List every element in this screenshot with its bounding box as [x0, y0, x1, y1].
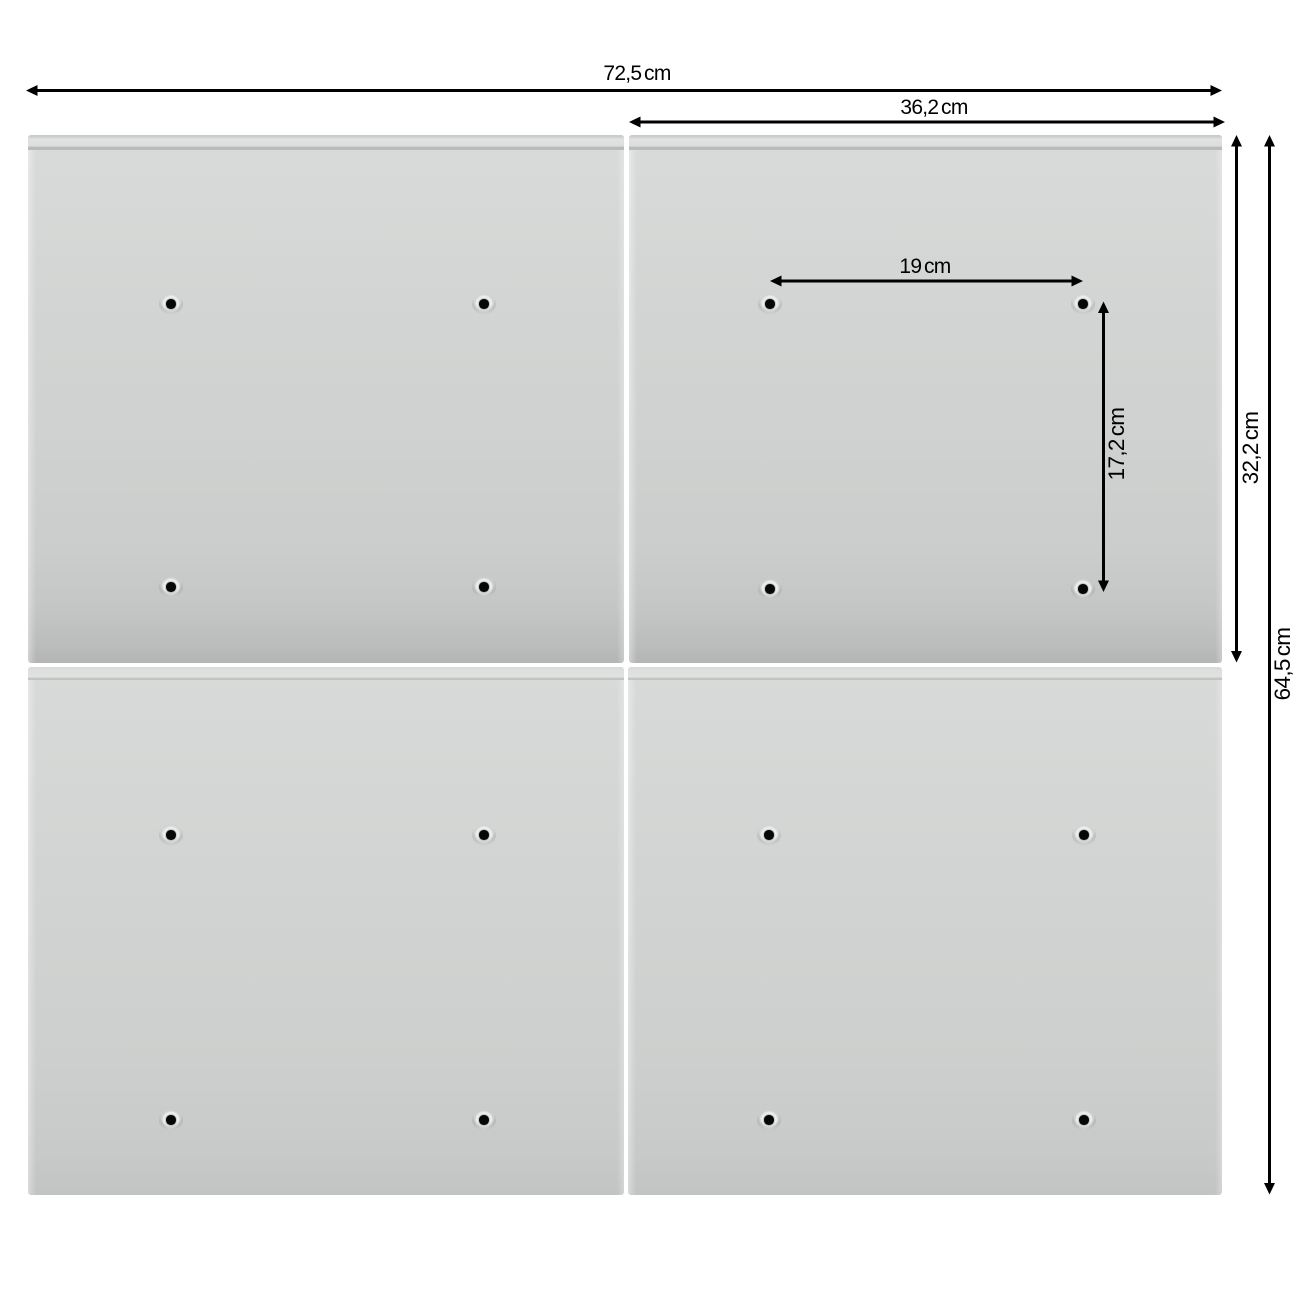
svg-text:36,2 cm: 36,2 cm [900, 96, 968, 119]
svg-text:17,2 cm: 17,2 cm [1104, 408, 1129, 481]
svg-text:19 cm: 19 cm [899, 255, 950, 278]
svg-text:72,5 cm: 72,5 cm [603, 62, 671, 85]
svg-text:32,2 cm: 32,2 cm [1238, 412, 1263, 485]
svg-text:64,5 cm: 64,5 cm [1270, 628, 1295, 701]
